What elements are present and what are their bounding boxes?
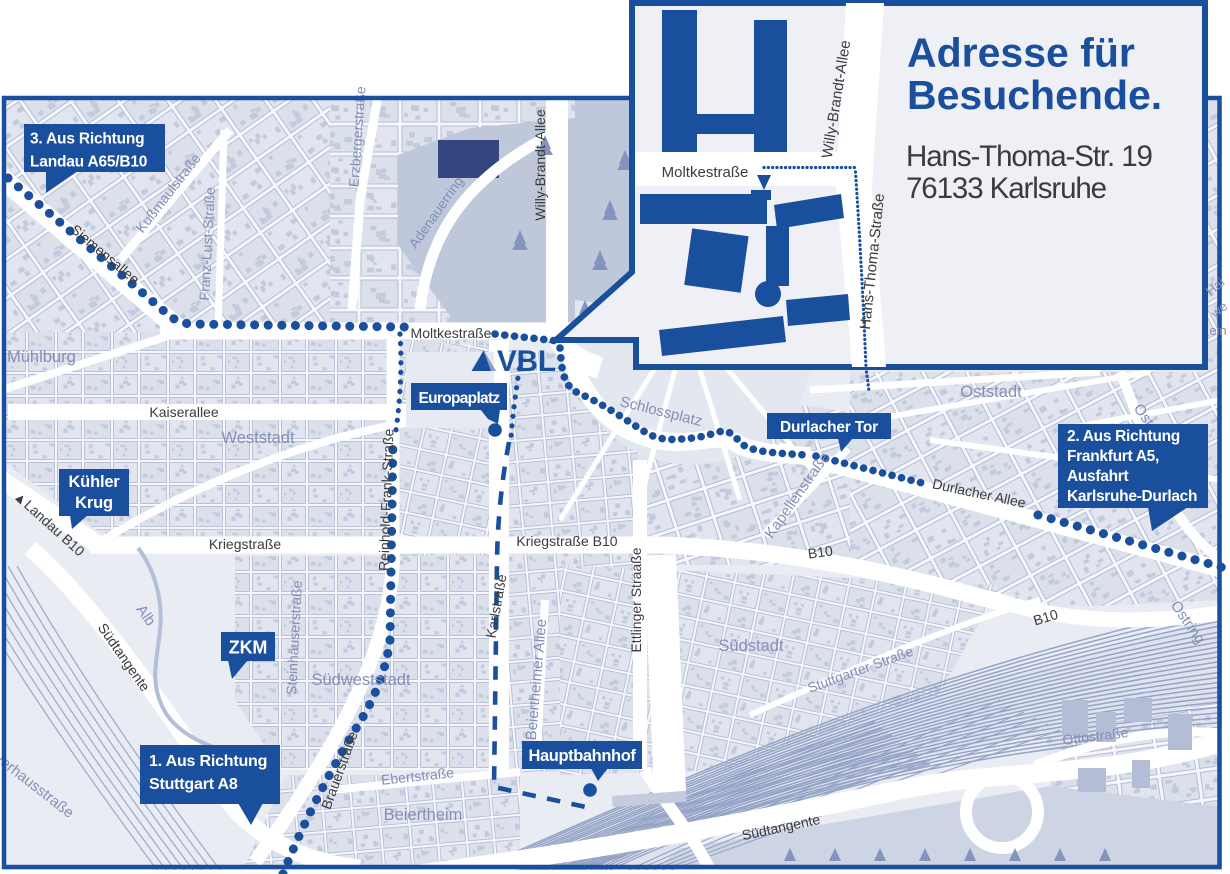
svg-text:Durlacher Tor: Durlacher Tor [780,419,878,436]
svg-text:Karlsruhe-Durlach: Karlsruhe-Durlach [1067,488,1197,505]
svg-text:2. Aus Richtung: 2. Aus Richtung [1067,428,1180,445]
svg-text:Kaiserallee: Kaiserallee [149,404,218,420]
svg-text:Adresse für: Adresse für [907,30,1135,76]
svg-text:Kühler: Kühler [68,473,120,491]
svg-text:Weststadt: Weststadt [221,429,294,447]
svg-text:Mühlburg: Mühlburg [7,348,76,366]
svg-text:ZKM: ZKM [229,638,267,658]
svg-text:Europaplatz: Europaplatz [418,390,500,407]
svg-text:Willy-Brandt-Allee: Willy-Brandt-Allee [532,109,548,220]
svg-text:Oststadt: Oststadt [960,383,1022,401]
svg-text:Stuttgart A8: Stuttgart A8 [149,776,238,793]
svg-text:Kriegstraße: Kriegstraße [209,536,282,552]
svg-text:Moltkestraße: Moltkestraße [411,325,492,341]
svg-text:1. Aus Richtung: 1. Aus Richtung [149,753,267,770]
svg-text:Ausfahrt: Ausfahrt [1067,468,1128,485]
svg-text:Südweststadt: Südweststadt [311,671,410,689]
svg-text:Hans-Thoma-Str. 19: Hans-Thoma-Str. 19 [906,140,1152,173]
svg-text:Frankfurt A5,: Frankfurt A5, [1067,448,1159,465]
svg-text:VBL: VBL [497,345,556,378]
svg-text:76133 Karlsruhe: 76133 Karlsruhe [906,172,1107,205]
svg-text:Kriegstraße B10: Kriegstraße B10 [516,533,617,549]
svg-text:Südstadt: Südstadt [718,637,784,655]
svg-text:ein: ein [1209,323,1226,338]
svg-text:3. Aus Richtung: 3. Aus Richtung [30,131,144,148]
svg-text:Beiertheim: Beiertheim [384,806,463,824]
svg-text:Landau A65/B10: Landau A65/B10 [30,154,147,171]
svg-text:Ettlinger Straaße: Ettlinger Straaße [628,547,644,652]
svg-text:Krug: Krug [75,494,113,512]
svg-text:Hauptbahnhof: Hauptbahnhof [528,747,636,765]
svg-text:Moltkestraße: Moltkestraße [662,164,749,181]
svg-text:Besuchende.: Besuchende. [907,72,1162,118]
